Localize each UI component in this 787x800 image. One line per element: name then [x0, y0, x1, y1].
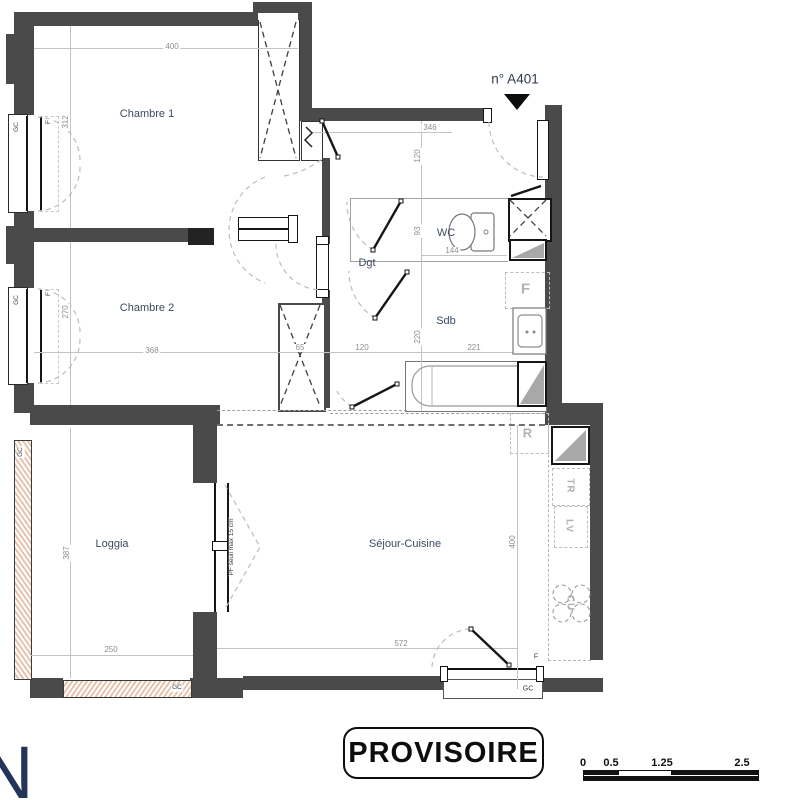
wall-bottom-mid [243, 676, 443, 690]
annotation-gc: GC [14, 121, 21, 133]
annotation-gc: GC [18, 446, 25, 458]
room-label-loggia: Loggia [95, 538, 128, 550]
wall-loggia-right-upper [193, 425, 217, 483]
scale-label-1-25: 1.25 [651, 757, 672, 769]
dim-line-368-120-221 [34, 352, 545, 353]
appliance-label-cu: CU [565, 595, 576, 611]
dim-label-93: 93 [414, 225, 422, 238]
chambre2-door-tick-top [316, 236, 329, 245]
wall-loggia-right-lower [193, 612, 217, 680]
dim-label-120: 120 [353, 344, 370, 352]
beam-line-3 [217, 424, 545, 426]
wall-kitchen-top [545, 403, 603, 425]
dim-label-120: 120 [414, 147, 422, 164]
dim-line-346 [312, 132, 452, 133]
appliance-label-tr: TR [565, 478, 576, 493]
dim-line-250 [30, 655, 193, 656]
dim-line-144 [421, 255, 507, 256]
wall-right-of-closet [298, 11, 312, 121]
window1-clearance [40, 116, 59, 212]
closet-chambre2 [278, 303, 326, 412]
dim-label-368: 368 [143, 347, 160, 355]
wall-sejour-right [590, 425, 603, 660]
wc-enclosure [350, 198, 508, 262]
scale-bar-baseline [584, 775, 758, 780]
appliance-label-r: R [523, 426, 533, 441]
wall-stub-dark [188, 228, 214, 245]
dim-label-346: 346 [421, 124, 438, 132]
double-door-hinge-tick [288, 215, 298, 243]
double-door-leaf-top [238, 217, 292, 229]
beam-line-2 [330, 413, 545, 414]
room-label-wc: WC [437, 227, 455, 239]
wall-corridor-a [322, 158, 330, 244]
annotation-gc: GC [14, 294, 21, 306]
appliance-label-lv: LV [564, 519, 575, 533]
wall-loggia-bottom-left [30, 678, 63, 698]
wall-mid-bedrooms [34, 228, 188, 242]
sejour-window-tick-right [536, 666, 544, 682]
chambre2-door-leaf [316, 243, 329, 291]
dim-label-387: 387 [63, 544, 71, 561]
wall-top-left-corner [14, 12, 38, 26]
annotation-f: F [46, 119, 53, 125]
dim-line-572 [217, 648, 517, 649]
dim-label-144: 144 [443, 247, 460, 255]
double-door-leaf-bottom [238, 229, 292, 241]
pillar-left-1 [6, 34, 32, 84]
dim-label-250: 250 [102, 646, 119, 654]
entrance-frame-tick [483, 108, 492, 123]
dim-line-400-sejour [517, 425, 518, 689]
unit-number-label: n° A401 [491, 72, 538, 87]
scale-label-0-5: 0.5 [603, 757, 618, 769]
scale-bar [583, 770, 759, 781]
wall-chambre2-bottom [30, 405, 220, 425]
entrance-arrow-icon [504, 94, 530, 110]
dim-label-400: 400 [509, 533, 517, 550]
annotation-f: F [46, 291, 53, 297]
beam-line-1 [217, 410, 407, 411]
sejour-window-tick-left [440, 666, 448, 682]
dim-label-312: 312 [62, 113, 70, 130]
annotation-gc: GC [522, 686, 535, 693]
room-label-chambre2: Chambre 2 [120, 302, 174, 314]
room-label-sejour-cuisine: Séjour-Cuisine [369, 538, 441, 550]
logo-letter-n: N [0, 736, 33, 800]
annotation-pf-seuil-max-15-cm: PF seuil max 15 cm [229, 517, 236, 576]
provisoire-stamp: PROVISOIRE [343, 727, 544, 779]
bathtub-outer [405, 361, 547, 412]
loggia-wall-left-hatched [14, 440, 32, 680]
dim-label-221: 221 [465, 344, 482, 352]
washbasin-icon [513, 308, 546, 354]
closet-chambre1 [258, 20, 300, 161]
dim-label-400: 400 [163, 43, 180, 51]
wall-hall-top [310, 108, 490, 121]
room-label-chambre1: Chambre 1 [120, 108, 174, 120]
annotation-f: F [533, 654, 539, 661]
dim-label-220: 220 [414, 328, 422, 345]
dim-line-270 [70, 242, 71, 405]
pillar-left-2 [6, 226, 32, 264]
scale-label-2-5: 2.5 [734, 757, 749, 769]
dim-line-312 [70, 26, 71, 228]
floorplan-canvas: Chambre 1Chambre 2WCDgtSdbLoggiaSéjour-C… [0, 0, 787, 800]
wall-bottom-right [540, 678, 603, 692]
chambre2-door-tick-bottom [316, 289, 329, 298]
dim-label-572: 572 [392, 640, 409, 648]
duct-box [508, 198, 552, 242]
entrance-door-leaf [537, 120, 549, 180]
scale-label-0: 0 [580, 757, 586, 769]
room-label-sdb: Sdb [436, 315, 456, 327]
wall-loggia-bottom-right [190, 678, 243, 698]
dim-label-270: 270 [62, 303, 70, 320]
pf-door-mid-tick [212, 541, 228, 551]
window2-clearance [40, 289, 59, 384]
niche-box [301, 121, 323, 161]
room-label-dgt: Dgt [358, 257, 375, 269]
wall-top [36, 12, 258, 26]
dim-label-65: 65 [294, 344, 307, 352]
annotation-gc: GC [171, 685, 183, 692]
appliance-label-f: F [521, 281, 531, 298]
provisoire-stamp-text: PROVISOIRE [348, 737, 539, 770]
